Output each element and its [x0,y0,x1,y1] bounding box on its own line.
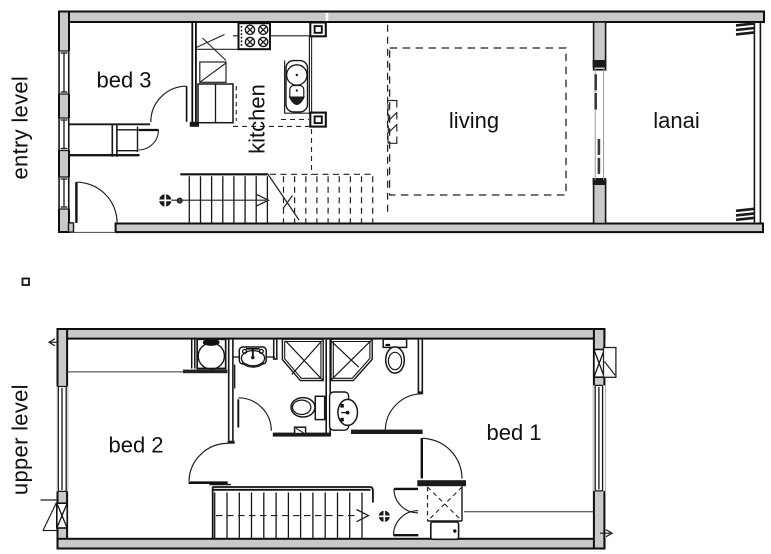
svg-text:upper level: upper level [8,384,33,495]
svg-text:entry level: entry level [8,76,33,180]
svg-text:bed 3: bed 3 [96,68,151,93]
svg-text:lanai: lanai [653,108,699,133]
svg-text:bed 1: bed 1 [486,420,541,445]
svg-text:kitchen: kitchen [245,84,270,154]
svg-text:living: living [449,108,499,133]
svg-text:bed 2: bed 2 [108,433,163,458]
